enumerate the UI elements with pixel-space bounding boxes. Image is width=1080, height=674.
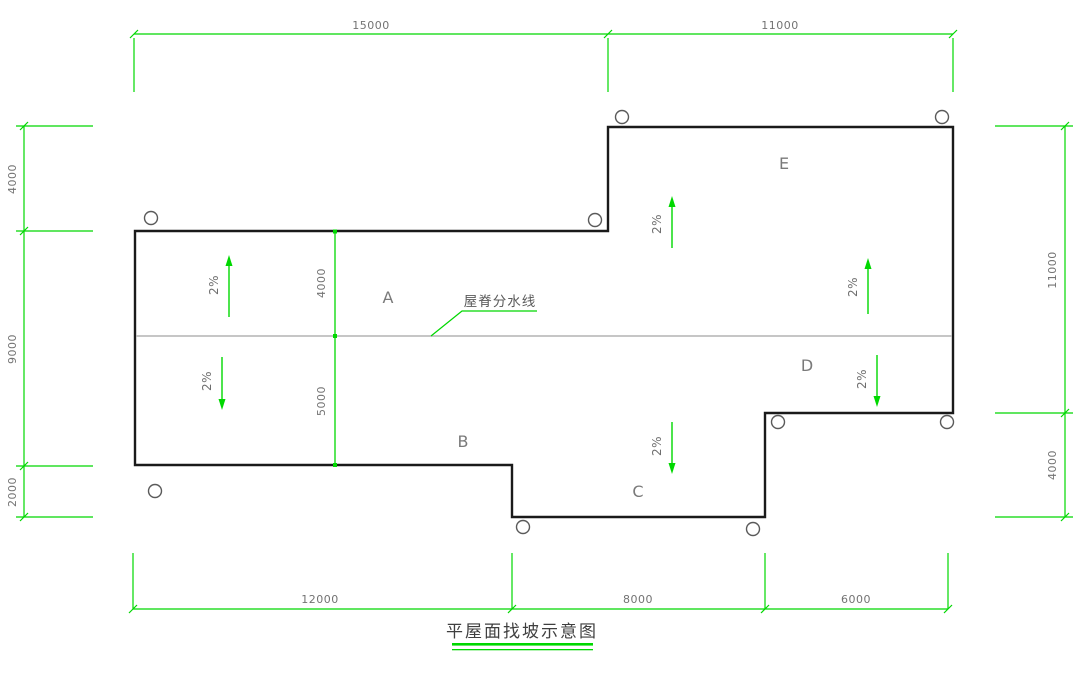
slope-arrow-down-icon (874, 355, 881, 407)
slope-arrow-up-icon (226, 255, 233, 317)
drain-circle (936, 111, 949, 124)
slope-label-d: 2% (855, 369, 869, 389)
dim-left-3: 2000 (6, 477, 19, 507)
drain-outlet-circles (145, 111, 954, 536)
roof-plan-canvas: 4000 5000 屋脊分水线 A B C D E 2% 2% 2% 2% 2% (0, 0, 1080, 674)
left-dimension-lines (16, 122, 93, 521)
drain-circle (149, 485, 162, 498)
roof-outline (135, 127, 953, 517)
title-underline-thin (452, 649, 593, 650)
slope-arrow-down-icon (669, 422, 676, 474)
right-dimension-lines (995, 122, 1073, 521)
ridge-label: 屋脊分水线 (464, 294, 537, 310)
ridge-leader-line (431, 311, 537, 336)
dim-bottom-1: 12000 (301, 593, 339, 606)
slope-arrow-up-icon (865, 258, 872, 314)
slope-label-a: 2% (207, 275, 221, 295)
dim-top-2: 11000 (761, 19, 799, 32)
dim-top-1: 15000 (352, 19, 390, 32)
slope-label-c: 2% (650, 436, 664, 456)
top-dimension-lines (130, 30, 957, 92)
drain-circle (589, 214, 602, 227)
dim-bottom-3: 6000 (841, 593, 871, 606)
slope-arrow-down-icon (219, 357, 226, 410)
dim-left-1: 4000 (6, 164, 19, 194)
drawing-title: 平屋面找坡示意图 (446, 622, 598, 642)
region-label-e: E (779, 154, 789, 173)
bottom-dimension-lines (129, 553, 952, 613)
region-label-d: D (801, 356, 813, 375)
interior-dim-label-lower: 5000 (315, 386, 328, 416)
region-label-a: A (383, 288, 394, 307)
drain-circle (517, 521, 530, 534)
drain-circle (747, 523, 760, 536)
drain-circle (616, 111, 629, 124)
dim-right-1: 11000 (1046, 251, 1059, 289)
slope-label-b: 2% (200, 371, 214, 391)
interior-dim-label-upper: 4000 (315, 268, 328, 298)
title-underline-thick (452, 643, 593, 646)
drain-circle (145, 212, 158, 225)
slope-label-e-left: 2% (650, 214, 664, 234)
dim-bottom-2: 8000 (623, 593, 653, 606)
dim-left-2: 9000 (6, 334, 19, 364)
region-label-c: C (632, 482, 643, 501)
slope-arrow-up-icon (669, 196, 676, 248)
dim-right-2: 4000 (1046, 450, 1059, 480)
drain-circle (941, 416, 954, 429)
drain-circle (772, 416, 785, 429)
slope-label-e-right: 2% (846, 277, 860, 297)
region-label-b: B (458, 432, 469, 451)
roof-plan-drawing: 4000 5000 屋脊分水线 A B C D E 2% 2% 2% 2% 2% (0, 0, 1080, 674)
